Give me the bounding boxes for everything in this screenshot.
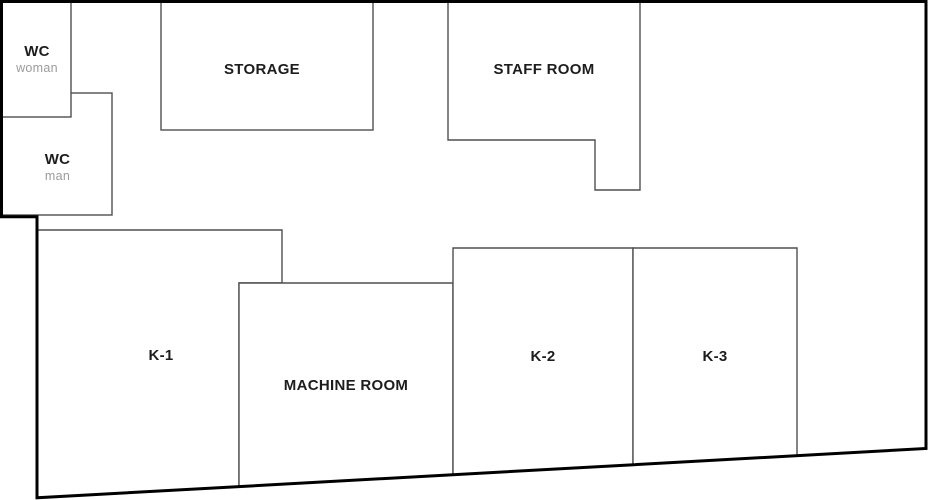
room-label-k2: K-2 — [530, 348, 555, 365]
room-sublabel-wc-man: man — [45, 169, 70, 183]
room-label-k3: K-3 — [702, 348, 727, 365]
room-sublabel-wc-woman: woman — [15, 61, 58, 75]
floor-plan: WC WC STORAGE STAFF ROOM K-1 MACHINE ROO… — [0, 0, 928, 500]
room-staff-room-outline — [448, 2, 640, 190]
room-label-wc-man: WC — [45, 151, 71, 168]
room-label-storage: STORAGE — [224, 61, 300, 78]
room-label-k1: K-1 — [148, 347, 173, 364]
room-label-machine-room: MACHINE ROOM — [284, 377, 408, 394]
rooms-layer — [2, 2, 797, 498]
floor-plan-drawing: WC WC STORAGE STAFF ROOM K-1 MACHINE ROO… — [0, 0, 928, 500]
room-label-wc-woman: WC — [24, 43, 50, 60]
room-label-staff-room: STAFF ROOM — [493, 61, 594, 78]
